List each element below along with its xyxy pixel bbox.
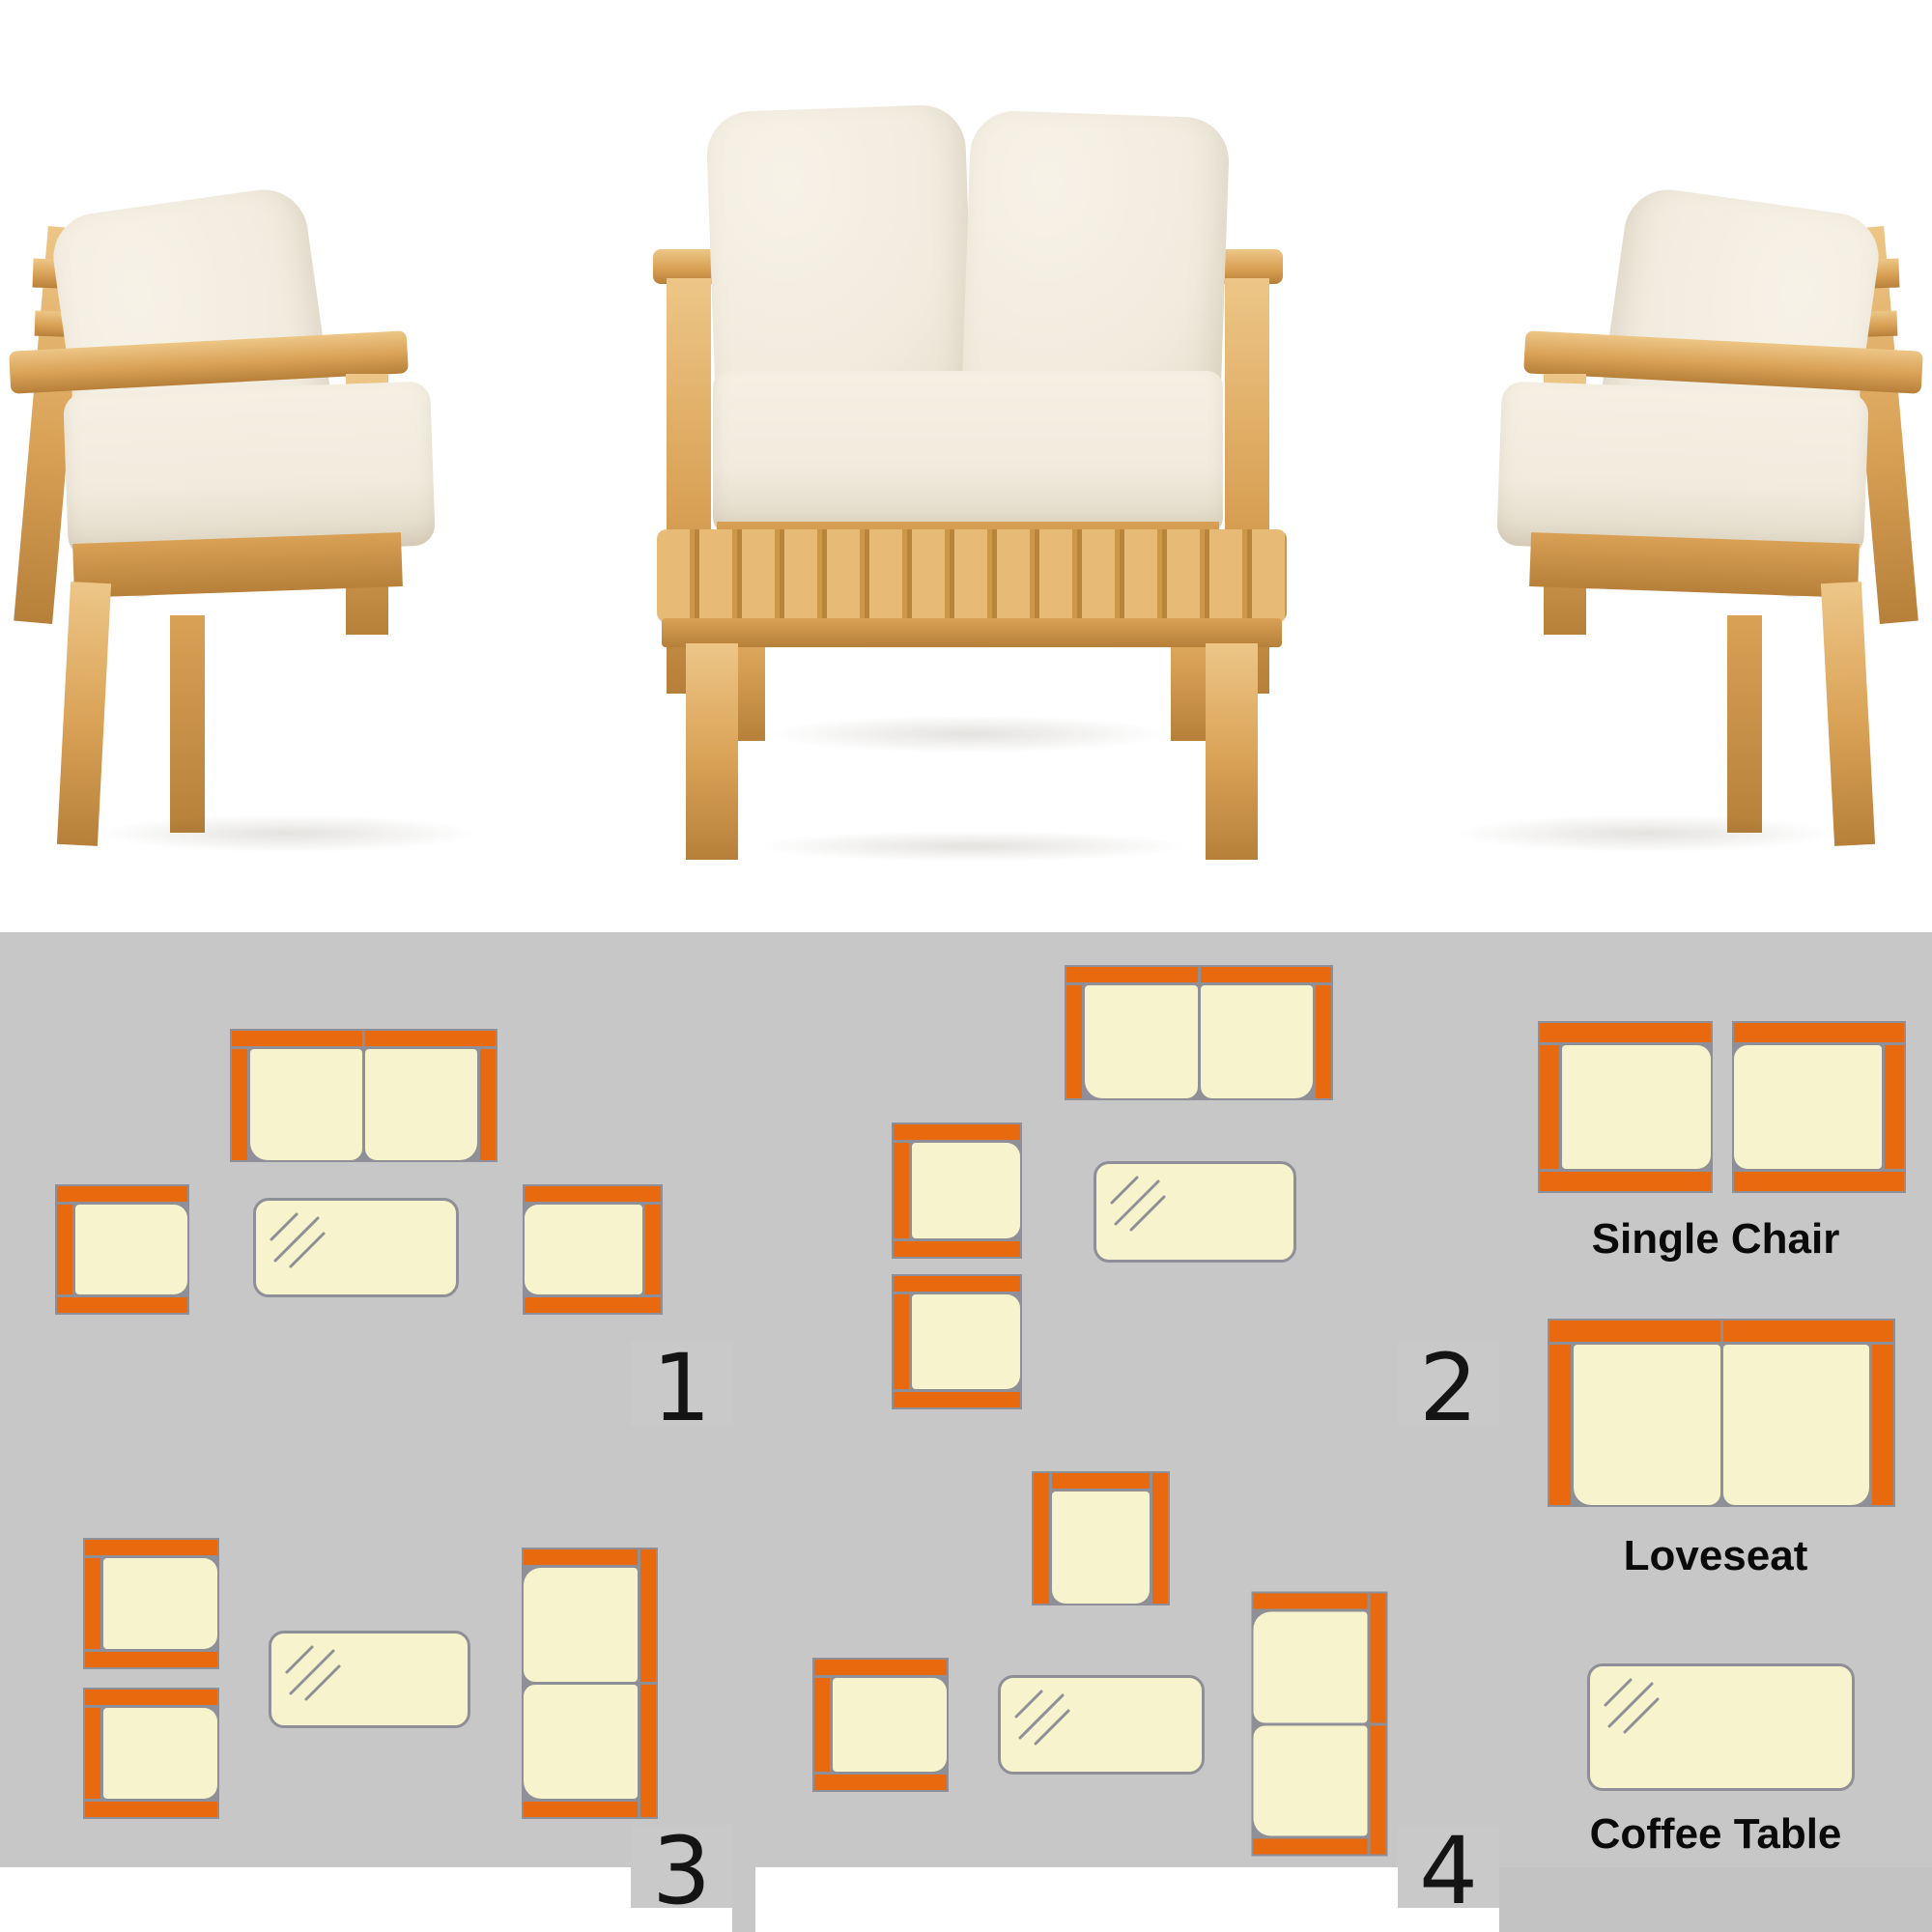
- backrest-bar: [1201, 967, 1332, 982]
- backrest-bar: [85, 1708, 100, 1799]
- coffee-table-icon: [1587, 1663, 1855, 1791]
- armrest-bar: [894, 1241, 1020, 1257]
- backrest-bar: [1370, 1593, 1385, 1722]
- wood-table-apron: [662, 618, 1282, 647]
- loveseat-icon: [1065, 965, 1333, 1100]
- single-chair-icon: [892, 1122, 1022, 1259]
- armrest-bar: [1152, 1473, 1168, 1604]
- armrest-bar: [480, 1049, 496, 1160]
- legend-label-single-chair: Single Chair: [1499, 1215, 1932, 1264]
- seat-cushion: [1496, 381, 1869, 557]
- seat-cushion: [365, 1049, 477, 1160]
- seat-cushion: [833, 1678, 947, 1772]
- single-chair-icon: [55, 1184, 189, 1315]
- glass-tabletop: [1587, 1663, 1855, 1791]
- armrest-bar: [1549, 1345, 1571, 1505]
- loveseat-icon: [1548, 1319, 1895, 1507]
- photo-armchair-right: [1369, 198, 1915, 865]
- coffee-table-icon: [253, 1198, 459, 1297]
- armrest-bar: [525, 1297, 661, 1313]
- seat-cushion: [103, 1558, 217, 1649]
- loveseat-icon: [1251, 1591, 1387, 1856]
- armrest-bar: [525, 1186, 661, 1202]
- armrest-bar: [1066, 985, 1082, 1098]
- single-chair-icon: [1538, 1021, 1713, 1193]
- backrest-bar: [57, 1205, 72, 1294]
- seat-cushion: [524, 1685, 638, 1799]
- backrest-bar: [640, 1549, 656, 1682]
- layout-number-badge-1: 1: [631, 1342, 732, 1425]
- single-chair-icon: [1732, 1021, 1906, 1193]
- armrest-bar: [894, 1276, 1020, 1292]
- floor-shadow: [663, 824, 1281, 868]
- photo-coffee-table: [657, 529, 1287, 863]
- backrest-bar: [1885, 1045, 1904, 1169]
- legend-label-loveseat: Loveseat: [1499, 1532, 1932, 1580]
- armrest-bar: [814, 1660, 947, 1675]
- backrest-bar: [1549, 1321, 1720, 1342]
- seat-cushion: [1574, 1345, 1720, 1505]
- armrest-bar: [232, 1049, 247, 1160]
- glass-tabletop: [998, 1675, 1205, 1775]
- seat-cushion: [713, 371, 1223, 533]
- armrest-bar: [57, 1186, 187, 1202]
- seat-cushion: [250, 1049, 362, 1160]
- seat-cushion: [1201, 985, 1314, 1098]
- backrest-bar: [1540, 1045, 1559, 1169]
- legend-label-coffee-table: Coffee Table: [1499, 1810, 1932, 1859]
- coffee-table-icon: [269, 1631, 470, 1728]
- wood-slatted-tabletop: [657, 529, 1287, 622]
- armrest-bar: [85, 1540, 217, 1555]
- layout-number-badge-2: 2: [1398, 1342, 1499, 1425]
- backrest-bar: [232, 1031, 362, 1046]
- coffee-table-icon: [1094, 1161, 1296, 1263]
- armrest-bar: [1253, 1838, 1367, 1854]
- seat-cushion: [1253, 1611, 1367, 1722]
- seat-cushion: [1734, 1045, 1882, 1169]
- single-chair-icon: [83, 1688, 219, 1819]
- seat-cushion: [524, 1568, 638, 1682]
- backrest-bar: [645, 1205, 661, 1294]
- single-chair-icon: [812, 1658, 949, 1792]
- seat-cushion: [525, 1205, 642, 1294]
- backrest-bar: [1370, 1725, 1385, 1855]
- armrest-bar: [524, 1802, 638, 1817]
- backrest-bar: [1066, 967, 1198, 982]
- seat-cushion: [103, 1708, 217, 1799]
- armrest-bar: [1540, 1172, 1711, 1191]
- floor-shadow: [17, 807, 558, 861]
- seat-cushion: [1085, 985, 1198, 1098]
- backrest-bar: [1052, 1473, 1150, 1489]
- seat-cushion: [1253, 1725, 1367, 1836]
- layout-number-badge-4: 4: [1398, 1825, 1499, 1908]
- backrest-bar: [894, 1143, 909, 1238]
- armrest-bar: [814, 1775, 947, 1790]
- armrest-bar: [85, 1690, 217, 1705]
- seat-cushion: [1052, 1492, 1150, 1604]
- product-infographic: 1 2 3 4 Single Chair Loveseat Coffee Tab…: [0, 0, 1932, 1932]
- coffee-table-icon: [998, 1675, 1205, 1775]
- single-chair-icon: [83, 1538, 219, 1669]
- photo-armchair-left: [17, 198, 563, 865]
- armrest-bar: [524, 1549, 638, 1565]
- glass-reflection-icon: [1108, 1174, 1176, 1241]
- layout-number-badge-3: 3: [631, 1825, 732, 1908]
- armrest-bar: [1253, 1593, 1367, 1608]
- single-chair-icon: [1032, 1471, 1170, 1605]
- seat-cushion: [912, 1294, 1020, 1389]
- wood-rear-leg: [170, 615, 205, 833]
- glass-reflection-icon: [1602, 1676, 1669, 1744]
- backrest-bar: [85, 1558, 100, 1649]
- loveseat-icon: [522, 1548, 658, 1819]
- glass-tabletop: [269, 1631, 470, 1728]
- single-chair-icon: [892, 1274, 1022, 1409]
- seat-cushion: [1723, 1345, 1870, 1505]
- armrest-bar: [1034, 1473, 1049, 1604]
- seat-cushion: [75, 1205, 187, 1294]
- glass-reflection-icon: [268, 1210, 335, 1278]
- armrest-bar: [1316, 985, 1331, 1098]
- backrest-bar: [1723, 1321, 1894, 1342]
- glass-tabletop: [1094, 1161, 1296, 1263]
- backrest-bar: [640, 1685, 656, 1817]
- armrest-bar: [1734, 1023, 1904, 1042]
- glass-reflection-icon: [283, 1643, 351, 1711]
- backrest-bar: [365, 1031, 496, 1046]
- armrest-bar: [894, 1392, 1020, 1407]
- backrest-bar: [814, 1678, 830, 1772]
- seat-cushion: [1562, 1045, 1711, 1169]
- wood-seat-base: [1529, 532, 1860, 598]
- armrest-bar: [57, 1297, 187, 1313]
- wood-seat-base: [72, 532, 403, 598]
- seat-cushion: [63, 381, 436, 557]
- armrest-bar: [1540, 1023, 1711, 1042]
- backrest-bar: [894, 1294, 909, 1389]
- armrest-bar: [85, 1802, 217, 1817]
- loveseat-icon: [230, 1029, 497, 1162]
- armrest-bar: [85, 1652, 217, 1667]
- armrest-bar: [1734, 1172, 1904, 1191]
- armrest-bar: [894, 1124, 1020, 1140]
- floor-shadow: [1374, 807, 1915, 861]
- single-chair-icon: [523, 1184, 663, 1315]
- armrest-bar: [1872, 1345, 1893, 1505]
- wood-rear-leg: [1727, 615, 1762, 833]
- glass-tabletop: [253, 1198, 459, 1297]
- glass-reflection-icon: [1012, 1688, 1080, 1755]
- seat-cushion: [912, 1143, 1020, 1238]
